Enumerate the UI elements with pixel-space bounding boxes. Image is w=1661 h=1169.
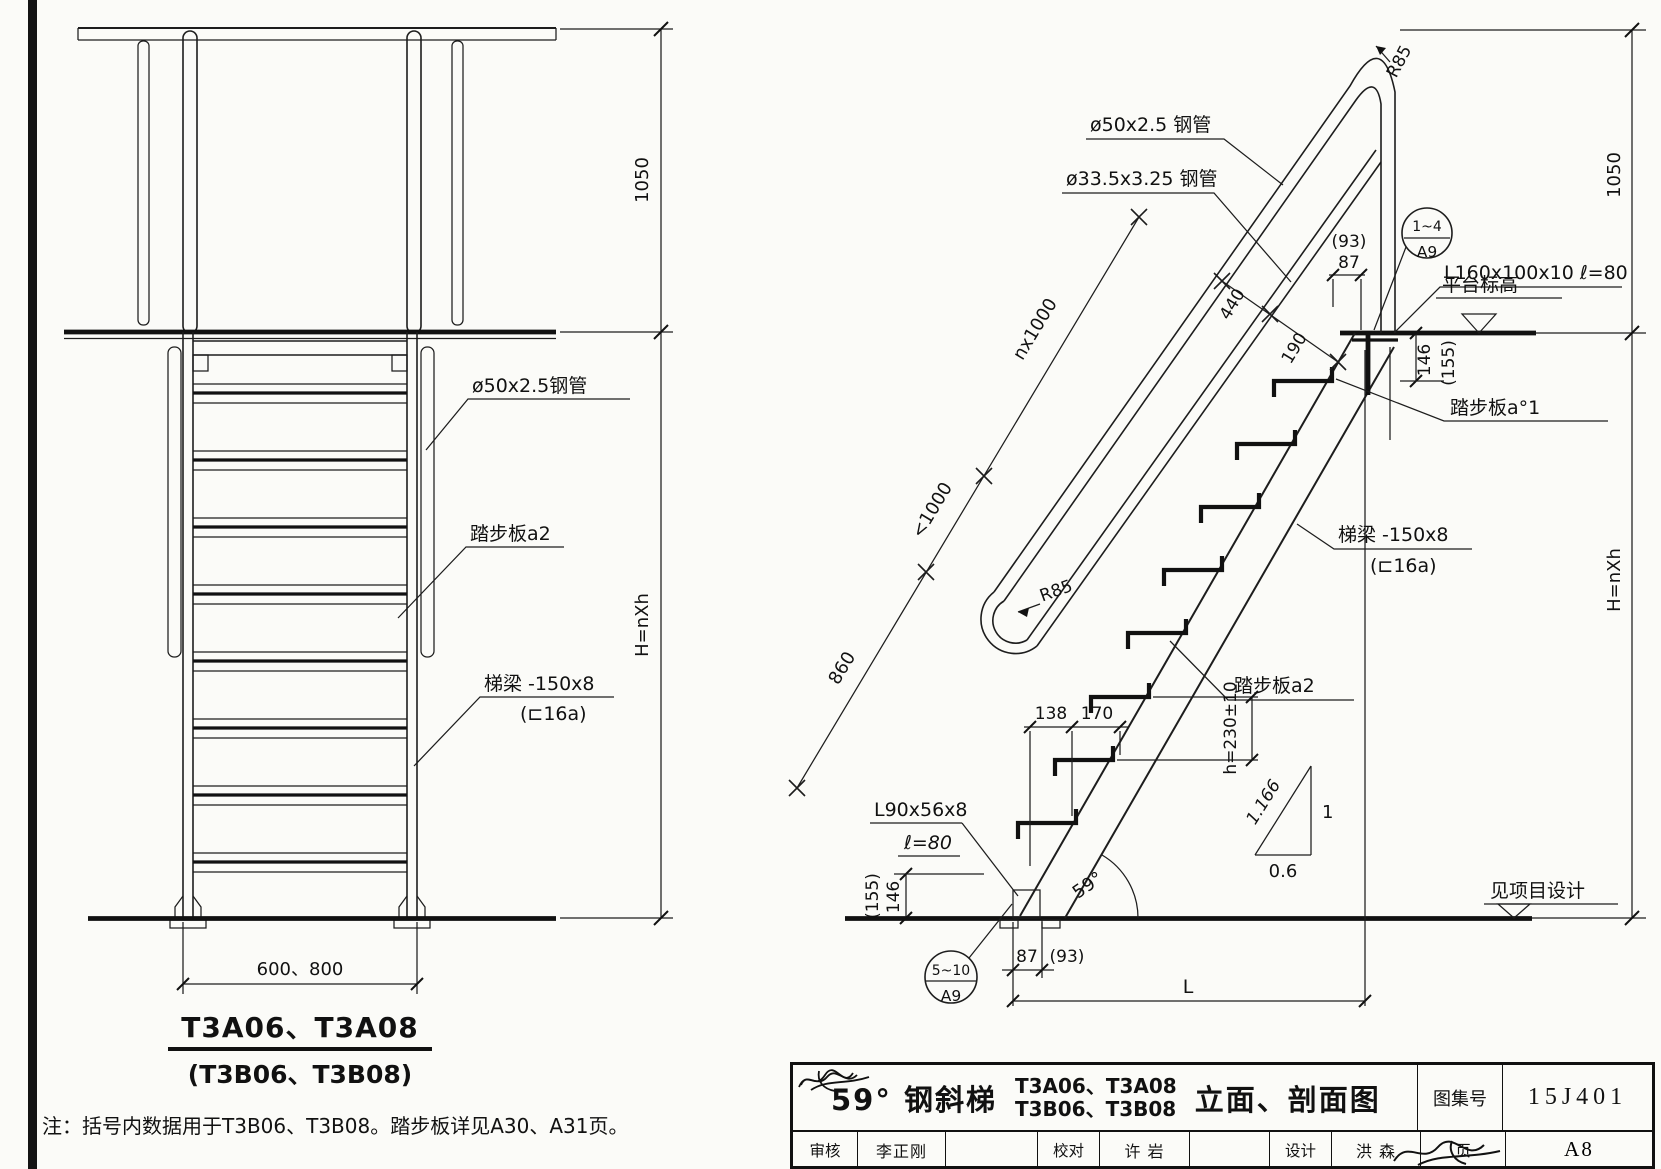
tread-sections [1018,367,1332,839]
dim-h-left: H=nXh [632,593,653,657]
slope-run: 0.6 [1269,861,1298,882]
callout-top-range: 1~4 [1412,219,1442,235]
dim-length: L [1183,976,1194,998]
dim-1050-left: 1050 [632,157,653,203]
dim-138: 138 [1035,704,1067,724]
dim-top-87: 87 [1338,253,1360,273]
dim-width: 600、800 [257,959,344,980]
models-line1: T3A06、T3A08 [1015,1075,1177,1098]
dim-155-top: (155) [1439,340,1459,386]
page-number: A8 [1505,1132,1652,1167]
slope-rise: 1 [1322,802,1333,823]
handrail-backpost-left [138,41,149,325]
signature-designer [1388,1137,1508,1169]
level-symbol-platform [1462,314,1496,333]
checker-label: 校对 [1037,1132,1099,1167]
view-title-2: (T3B06、T3B08) [188,1060,412,1089]
title-block: 59° 钢斜梯 T3A06、T3A08 T3B06、T3B08 立面、剖面图 图… [790,1062,1655,1169]
reviewer-label: 审核 [793,1132,857,1167]
handrail-return [981,592,1037,654]
dim-bottom-93: (93) [1050,947,1085,967]
slope-hyp: 1.166 [1242,776,1285,828]
reviewer-name: 李正刚 [857,1132,945,1167]
label-base-angle-2: ℓ=80 [903,832,952,854]
checker-name: 许 岩 [1099,1132,1189,1167]
radius-bottom-label: R85 [1037,576,1075,606]
drawing-sheet: 1050 H=nXh ø50x2.5钢管 踏步板a2 梯梁 -150x8 (⊏1… [0,0,1661,1169]
slope-triangle: 1.166 1 0.6 [1242,766,1333,882]
label-floor-level: 见项目设计 [1490,880,1585,902]
dim-bottom-87: 87 [1016,947,1038,967]
label-rail-pipe-right: ø50x2.5 钢管 [1090,114,1211,136]
label-mid-rail-pipe: ø33.5x3.25 钢管 [1066,168,1218,190]
atlas-label: 图集号 [1417,1065,1502,1130]
atlas-number: 15J401 [1502,1065,1652,1130]
label-stringer-left-1: 梯梁 -150x8 [484,673,595,695]
callout-top-page: A9 [1417,243,1437,261]
label-platform-level: 平台标高 [1442,274,1518,296]
label-stringer-left-2: (⊏16a) [520,703,587,725]
handrail-backpost-right [452,41,463,325]
callout-bottom-range: 5~10 [932,963,970,979]
dim-146-bottom: 146 [884,881,904,913]
dim-190: 190 [1278,329,1312,367]
tread-lines [193,384,407,872]
dim-170: 170 [1081,704,1113,724]
drawing-title: 立面、剖面图 [1195,1077,1381,1119]
dim-146-top: 146 [1415,344,1435,376]
radius-top-label: R85 [1383,42,1416,81]
label-tread-a1: 踏步板a°1 [1450,397,1540,419]
label-stringer-right-1: 梯梁 -150x8 [1338,524,1449,546]
callout-bottom-page: A9 [941,987,961,1005]
label-tread-left: 踏步板a2 [470,523,551,545]
dim-155-bottom: (155) [863,873,883,919]
checker-signature-cell [1189,1132,1269,1167]
dim-h-right: H=nXh [1604,548,1625,612]
binding-edge [28,0,37,1169]
handrail-post-right [407,31,421,333]
front-elevation: 1050 H=nXh ø50x2.5钢管 踏步板a2 梯梁 -150x8 (⊏1… [42,22,673,1138]
dim-860: 860 [824,648,860,688]
label-base-angle-1: L90x56x8 [874,799,968,821]
section-view: ø50x2.5 钢管 ø33.5x3.25 钢管 R85 R85 nx1000 … [789,23,1646,1007]
dim-1050-right: 1050 [1604,152,1625,198]
arrowhead-r85-top [1376,46,1386,55]
ladder-drawing: 1050 H=nXh ø50x2.5钢管 踏步板a2 梯梁 -150x8 (⊏1… [0,0,1661,1169]
handrail-post-left [183,31,197,333]
view-title-1: T3A06、T3A08 [181,1011,418,1044]
reviewer-signature-cell [945,1132,1037,1167]
signature-checker [793,1065,865,1095]
level-symbol-floor [1498,904,1530,918]
label-tread-a2-right: 踏步板a2 [1234,675,1315,697]
dim-nx1000: nx1000 [1009,295,1062,364]
models-line2: T3B06、T3B08 [1015,1098,1177,1121]
dim-step-height: h=230±10 [1221,681,1241,774]
label-rail-pipe-left: ø50x2.5钢管 [472,375,587,397]
dim-top-93: (93) [1332,232,1367,252]
note-text: 注：括号内数据用于T3B06、T3B08。踏步板详见A30、A31页。 [42,1114,628,1138]
angle-59: 59° [1069,868,1107,904]
designer-label: 设计 [1269,1132,1331,1167]
label-stringer-right-2: (⊏16a) [1370,555,1437,577]
